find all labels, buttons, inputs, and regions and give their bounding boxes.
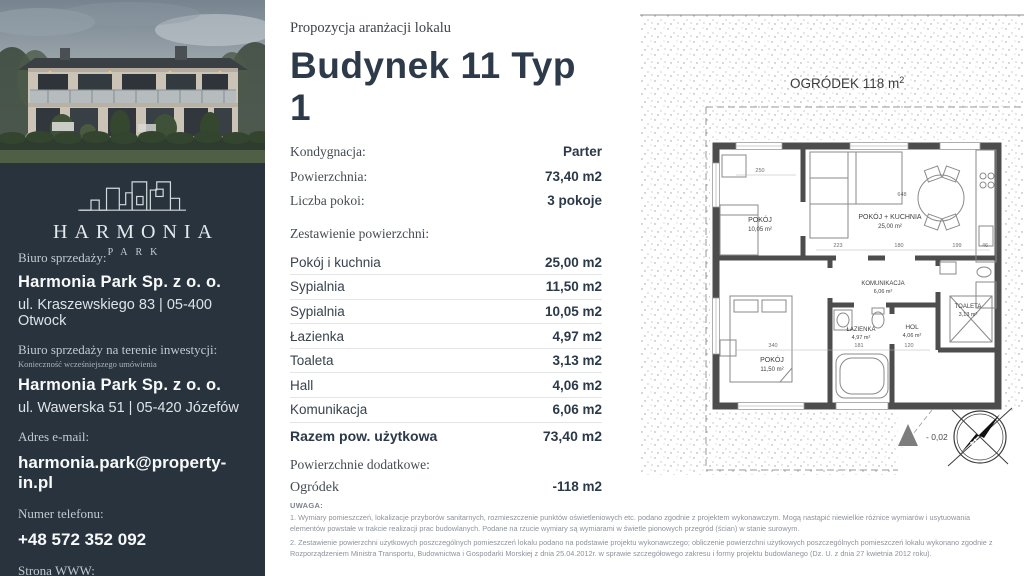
floor-value: Parter [563,144,602,159]
phone-label: Numer telefonu: [18,506,253,522]
room-area: 11,50 m2 [546,279,602,294]
total-value: 73,40 m2 [543,428,602,444]
brand-logo: HARMONIA PARK [0,170,265,258]
room-area: 4,97 m2 [552,329,602,344]
sales-office-name: Harmonia Park Sp. z o. o. [18,273,253,292]
svg-text:223: 223 [833,243,842,249]
room-label: TOALETA [955,304,982,310]
svg-text:46: 46 [982,243,988,249]
table-row: Toaleta 3,13 m2 [290,349,602,374]
total-row: Razem pow. użytkowa 73,40 m2 [290,423,602,449]
room-name: Pokój i kuchnia [290,255,381,270]
room-label: POKÓJ + KUCHNIA [858,212,922,221]
table-row: Pokój i kuchnia 25,00 m2 [290,251,602,276]
table-row: Sypialnia 11,50 m2 [290,275,602,300]
room-area-label: 4,97 m² [852,335,871,341]
room-name: Sypialnia [290,304,345,319]
footnote-header: UWAGA: [290,501,995,510]
site-office-label: Biuro sprzedaży na terenie inwestycji: [18,342,253,358]
building-photo [0,0,265,163]
room-area-label: 10,05 m² [748,227,772,233]
level-marker-value: - 0,02 [926,432,948,442]
table-row: Hall 4,06 m2 [290,373,602,398]
room-area: 25,00 m2 [545,255,602,270]
svg-text:120: 120 [904,343,913,349]
room-area: 4,06 m2 [552,378,602,393]
svg-text:199: 199 [952,243,961,249]
www-label: Strona WWW: [18,563,253,576]
room-name: Sypialnia [290,279,345,294]
room-area: 6,06 m2 [552,402,602,417]
svg-text:250: 250 [755,168,764,174]
sales-office-label: Biuro sprzedaży: [18,250,253,266]
eyebrow-text: Propozycja aranżacji lokalu [290,20,602,37]
room-area: 3,13 m2 [552,353,602,368]
building-footprint [710,140,1004,412]
phone-link[interactable]: +48 572 352 092 [18,530,253,550]
logo-skyline-icon [58,170,208,212]
additional-row: Ogródek -118 m2 [290,479,602,501]
total-label: Razem pow. użytkowa [290,428,437,444]
room-name: Hall [290,378,313,393]
svg-text:648: 648 [897,192,906,198]
room-area-label: 3,13 m² [959,312,978,318]
page-title: Budynek 11 Typ 1 [290,45,602,129]
svg-text:181: 181 [854,343,863,349]
room-name: Toaleta [290,353,334,368]
svg-text:340: 340 [768,343,777,349]
room-name: Łazienka [290,329,344,344]
site-office-address: ul. Wawerska 51 | 05-420 Józefów [18,400,253,416]
room-area: 10,05 m2 [545,304,602,319]
email-link[interactable]: harmonia.park@property-in.pl [18,453,253,493]
floor-label: Kondygnacja: [290,144,366,160]
footnote-item: 2. Zestawienie powierzchni użytkowych po… [290,537,995,560]
info-row-floor: Kondygnacja: Parter [290,144,602,169]
sidebar: HARMONIA PARK Biuro sprzedaży: Harmonia … [0,0,265,576]
info-row-area: Powierzchnia: 73,40 m2 [290,169,602,194]
garden-area: -118 m2 [552,479,602,494]
room-label: ŁAZIENKA [846,327,875,333]
room-label: HOL [905,324,919,331]
additional-header: Powierzchnie dodatkowe: [290,457,602,479]
garden-label: OGRÓDEK 118 m2 [790,75,904,91]
garden-name: Ogródek [290,480,339,496]
table-row: Sypialnia 10,05 m2 [290,300,602,325]
room-label: POKÓJ [748,215,772,224]
floor-plan-drawing: OGRÓDEK 118 m2 [640,0,1024,496]
room-label: POKÓJ [760,355,784,364]
email-label: Adres e-mail: [18,429,253,445]
room-area-label: 6,06 m² [874,289,893,295]
unit-details: Propozycja aranżacji lokalu Budynek 11 T… [265,0,640,576]
footnote-item: 1. Wymiary pomieszczeń, lokalizacje przy… [290,512,995,535]
rooms-table-header: Zestawienie powierzchni: [290,226,602,251]
building-photo-illustration [0,0,265,163]
footnotes: UWAGA: 1. Wymiary pomieszczeń, lokalizac… [290,501,995,559]
sales-office-address: ul. Kraszewskiego 83 | 05-400 Otwock [18,297,253,329]
rooms-count-label: Liczba pokoi: [290,193,365,209]
property-card: HARMONIA PARK Biuro sprzedaży: Harmonia … [0,0,1024,576]
room-label: KOMUNIKACJA [861,281,904,287]
site-office-note: Konieczność wcześniejszego umówienia [18,359,253,369]
table-row: Komunikacja 6,06 m2 [290,398,602,423]
logo-title: HARMONIA [0,221,265,244]
floor-plan: OGRÓDEK 118 m2 [640,0,1024,496]
table-row: Łazienka 4,97 m2 [290,324,602,349]
room-name: Komunikacja [290,402,367,417]
site-office-name: Harmonia Park Sp. z o. o. [18,376,253,395]
room-area-label: 11,50 m² [760,367,783,373]
rooms-count-value: 3 pokoje [547,193,602,208]
room-area-label: 25,00 m² [878,224,902,230]
area-label: Powierzchnia: [290,169,367,185]
svg-text:180: 180 [894,243,903,249]
room-area-label: 4,06 m² [903,333,922,339]
contact-info: Biuro sprzedaży: Harmonia Park Sp. z o. … [18,250,253,576]
info-row-rooms: Liczba pokoi: 3 pokoje [290,193,602,218]
area-value: 73,40 m2 [545,169,602,184]
